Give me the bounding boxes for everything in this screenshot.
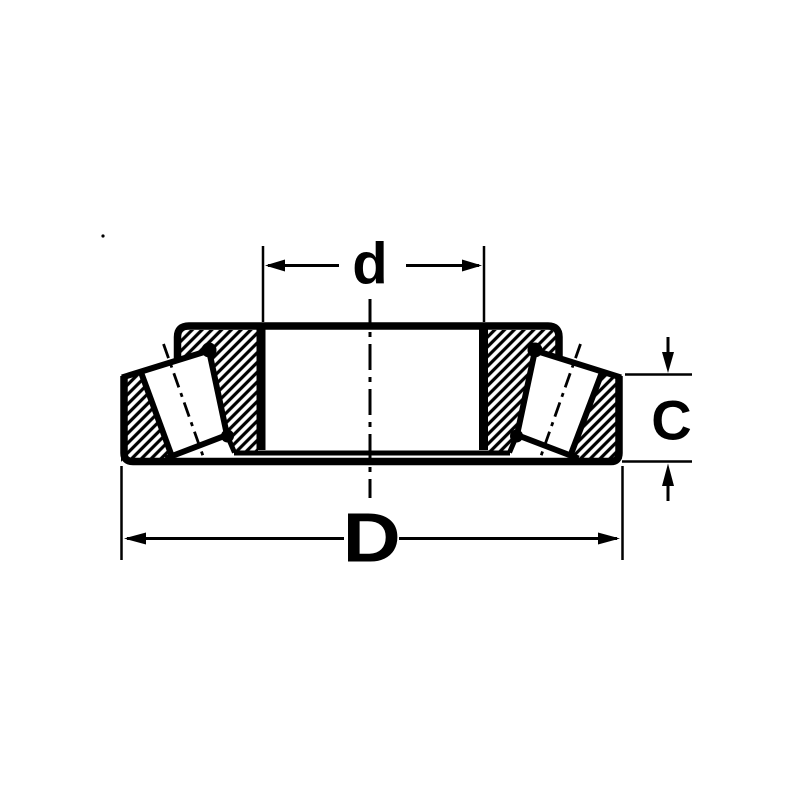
svg-text:d: d (352, 232, 387, 297)
svg-text:D: D (343, 498, 401, 576)
svg-text:C: C (651, 389, 691, 452)
